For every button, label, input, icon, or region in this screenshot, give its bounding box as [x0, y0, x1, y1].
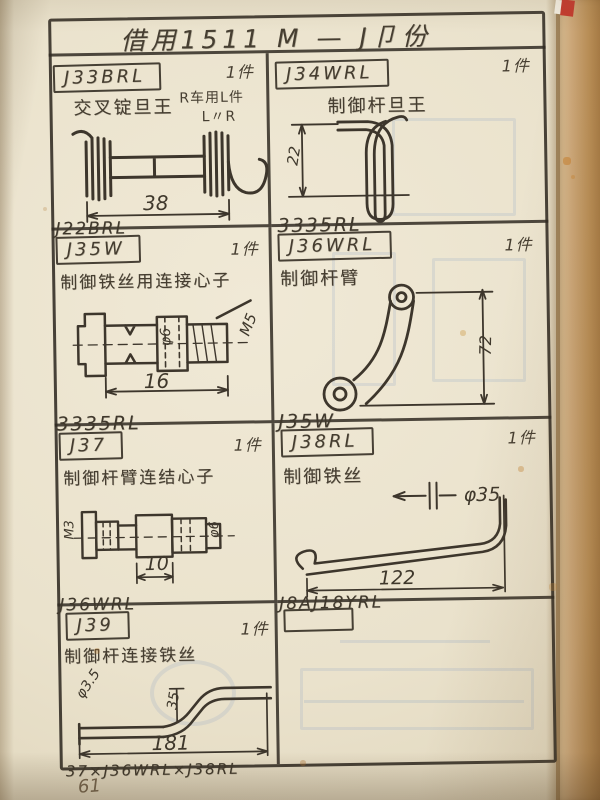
part-description: 制御杆连接铁丝 — [64, 640, 197, 667]
quantity: 1件 — [226, 58, 255, 82]
part-cell-empty — [277, 599, 556, 764]
part-id: J37 — [58, 431, 123, 461]
quantity: 1件 — [240, 615, 269, 639]
dim-height: 35 — [164, 691, 183, 711]
dim-length: 38 — [143, 191, 169, 215]
dim-length: 181 — [151, 730, 190, 755]
book-page-photo: 借用1511 M — J卩份 J33BRL 1件 交叉锭旦王 R车用L件 L〃R — [0, 0, 600, 800]
ref-id: 3335RL — [277, 214, 361, 237]
quantity: 1件 — [504, 231, 533, 255]
part-description: 制御铁丝用连接心子 — [60, 266, 231, 294]
dim-length: 122 — [379, 567, 416, 590]
dim-height: 22 — [283, 145, 304, 167]
part-id: J33BRL — [53, 62, 162, 93]
quantity: 1件 — [507, 424, 536, 448]
part-description: 制御杆臂连结心子 — [63, 462, 215, 489]
ref-id: J36WRL — [59, 594, 136, 615]
ref-id: J35W — [278, 410, 335, 433]
part-cell-j38rl: J38RL 1件 制御铁丝 — [274, 419, 554, 603]
dim-diameter: φ6 — [207, 521, 222, 538]
paper-stains — [0, 0, 2, 2]
part-cell-j36wrl: J36WRL 1件 制御杆臂 72 J35W — [271, 223, 551, 423]
part-id: J34WRL — [275, 59, 389, 90]
quantity: 1件 — [233, 431, 262, 455]
hairpin-spring-drawing — [280, 113, 532, 225]
dim-diameter: φ35 — [463, 484, 500, 507]
part-cell-j33brl: J33BRL 1件 交叉锭旦王 R车用L件 L〃R — [49, 53, 272, 230]
dim-thread: M3 — [62, 520, 77, 540]
ref-id: J22BRL — [55, 218, 127, 239]
part-cell-j34wrl: J34WRL 1件 制御杆旦王 22 3335RL — [269, 49, 549, 227]
page-left-edge — [0, 0, 14, 800]
page-number: 61 — [77, 775, 101, 798]
quantity: 1件 — [501, 52, 530, 76]
part-description: 交叉锭旦王 — [73, 93, 173, 121]
dim-length: 16 — [144, 369, 170, 393]
part-cell-j39: J39 1件 制御杆连接铁丝 — [57, 603, 280, 767]
dim-length: 10 — [145, 553, 170, 575]
part-note: R车用L件 — [179, 87, 244, 108]
part-cell-j37: J37 1件 制御杆臂连结心子 — [55, 423, 278, 606]
dim-length: 72 — [476, 335, 495, 356]
part-id: J39 — [65, 611, 130, 641]
ref-id: 3335RL — [56, 412, 140, 435]
red-bookmark-sliver — [560, 0, 575, 17]
quantity: 1件 — [230, 235, 259, 259]
ref-id: J8AJ18YRL — [279, 592, 383, 614]
catalog-sheet: 借用1511 M — J卩份 J33BRL 1件 交叉锭旦王 R车用L件 L〃R — [36, 5, 565, 785]
dim-diameter: φ6 — [158, 328, 174, 346]
part-cell-j35w: J35W 1件 制御铁丝用连接心子 — [51, 227, 274, 426]
connecting-pin-drawing — [62, 493, 278, 596]
